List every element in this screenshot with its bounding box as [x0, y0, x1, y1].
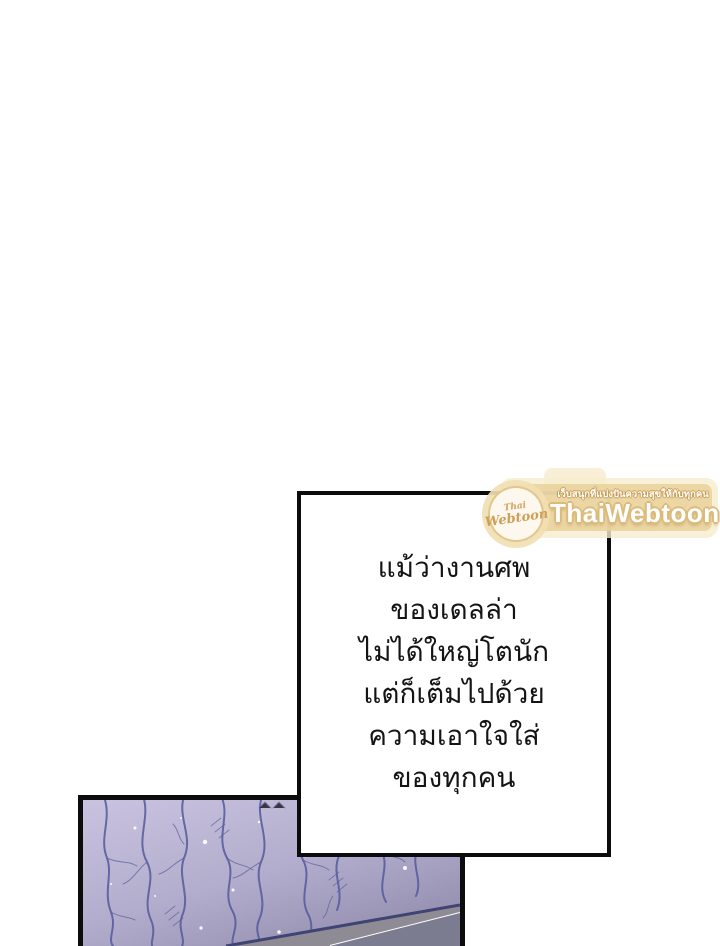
narration-line: ความเอาใจใส่ [359, 716, 549, 758]
narration-line: แม้ว่างานศพ [359, 548, 549, 590]
narration-line: ไม่ได้ใหญ่โตนัก [359, 632, 549, 674]
narration-line: แต่ก็เต็มไปด้วย [359, 674, 549, 716]
thaiwebtoon-watermark: Thai Webtoon เว็บสนุกที่แบ่งปันความสุขให… [478, 468, 720, 552]
narration-line: ของทุกคน [359, 758, 549, 800]
logo-script-line2: Webtoon [484, 507, 549, 530]
webtoon-page: แม้ว่างานศพของเดลล่าไม่ได้ใหญ่โตนักแต่ก็… [0, 0, 720, 946]
narration-line: ของเดลล่า [359, 590, 549, 632]
watermark-title: ThaiWebtoon [550, 498, 716, 529]
narration-text: แม้ว่างานศพของเดลล่าไม่ได้ใหญ่โตนักแต่ก็… [359, 548, 549, 800]
